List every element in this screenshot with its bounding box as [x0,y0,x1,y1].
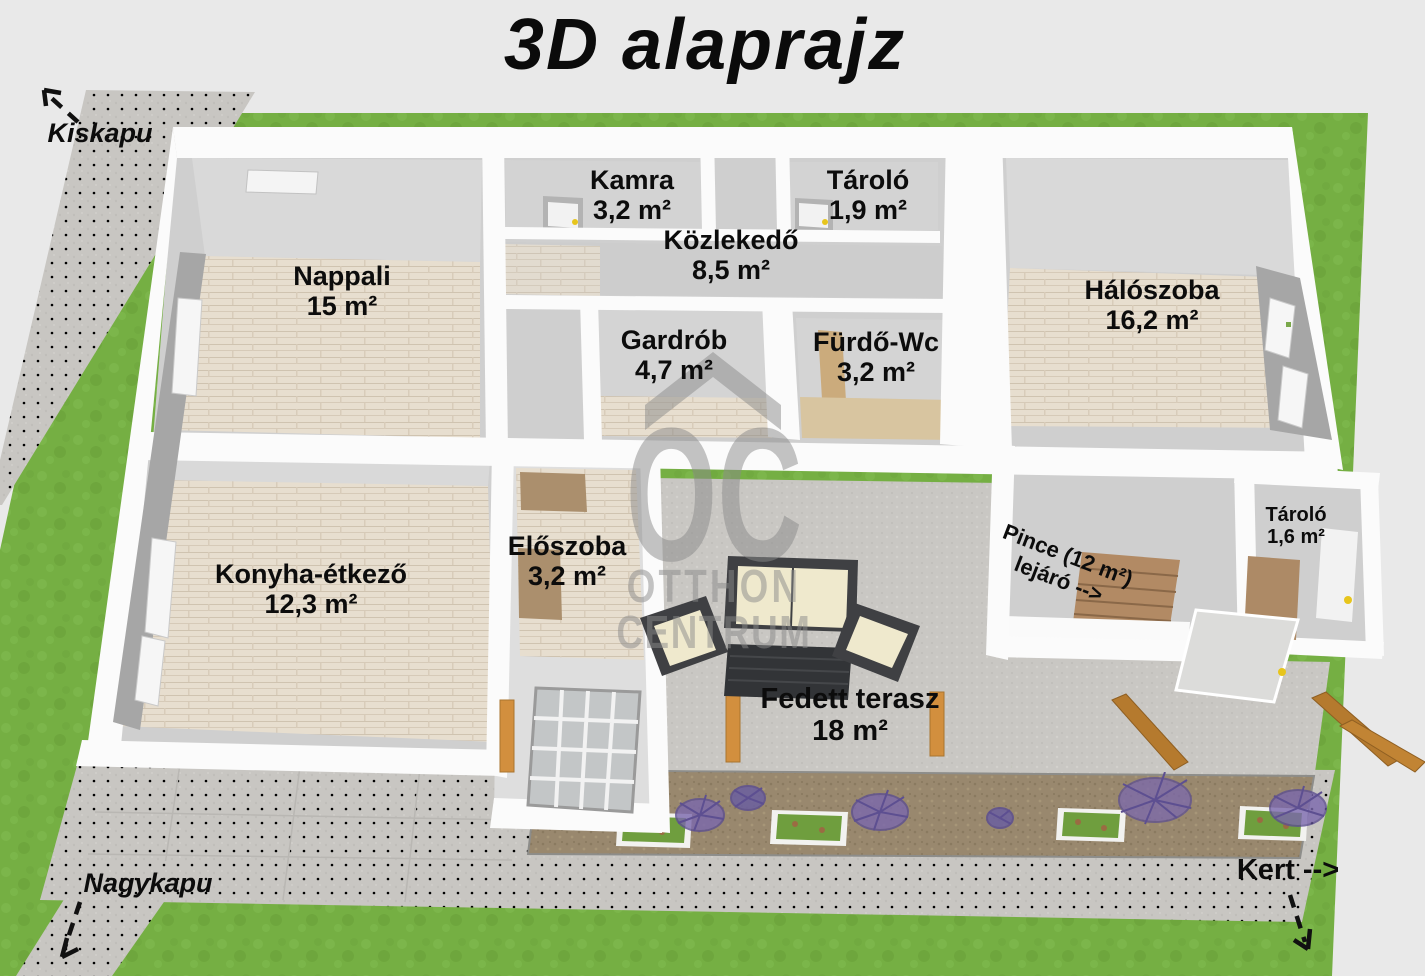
room-label-tarolo-16: Tároló1,6 m² [1265,504,1326,548]
watermark-logo: OC OTTHON CENTRUM [616,352,811,658]
livingroom-north-wall [192,158,482,262]
bedroom-window-2 [1278,366,1308,428]
livingroom-ac-unit [246,170,318,194]
room-label-kamra: Kamra3,2 m² [590,166,674,225]
cellar-door-handle [1278,668,1286,676]
watermark-line1: OTTHON [627,560,802,612]
room-label-haloszoba: Hálószoba16,2 m² [1084,276,1219,335]
label-nagykapu: Nagykapu [83,868,212,899]
pantry-door-handle [572,219,578,225]
annex-door-handle [1344,596,1352,604]
room-label-nappali: Nappali15 m² [293,262,391,321]
entry-mat-1 [520,472,587,512]
room-label-konyha-etkezo: Konyha-étkező12,3 m² [215,560,407,619]
room-label-fedett-terasz: Fedett terasz18 m² [761,684,940,748]
page-title: 3D alaprajz [504,4,906,86]
hallway-wood [505,244,600,296]
bedroom-north-wall [1006,158,1296,276]
room-label-tarolo-19: Tároló1,9 m² [827,166,910,225]
window-handle-green [1286,322,1291,327]
bathroom-tile-floor [800,397,956,440]
room-label-eloszoba: Előszoba3,2 m² [508,532,627,591]
watermark-line2: CENTRUM [616,606,811,658]
label-kiskapu: Kiskapu [47,118,152,149]
room-label-furdo-wc: Fürdő-Wc3,2 m² [813,328,939,387]
room-label-gardrob: Gardrób4,7 m² [621,326,728,385]
floorplan-stage: OC OTTHON CENTRUM 3D alaprajz Kiskapu Na… [0,0,1425,976]
floorplan-scene: OC OTTHON CENTRUM [0,0,1425,976]
room-label-kozlekedo: Közlekedő8,5 m² [663,226,798,285]
label-kert: Kert --> [1237,854,1339,887]
bedroom-window-1 [1265,298,1295,358]
